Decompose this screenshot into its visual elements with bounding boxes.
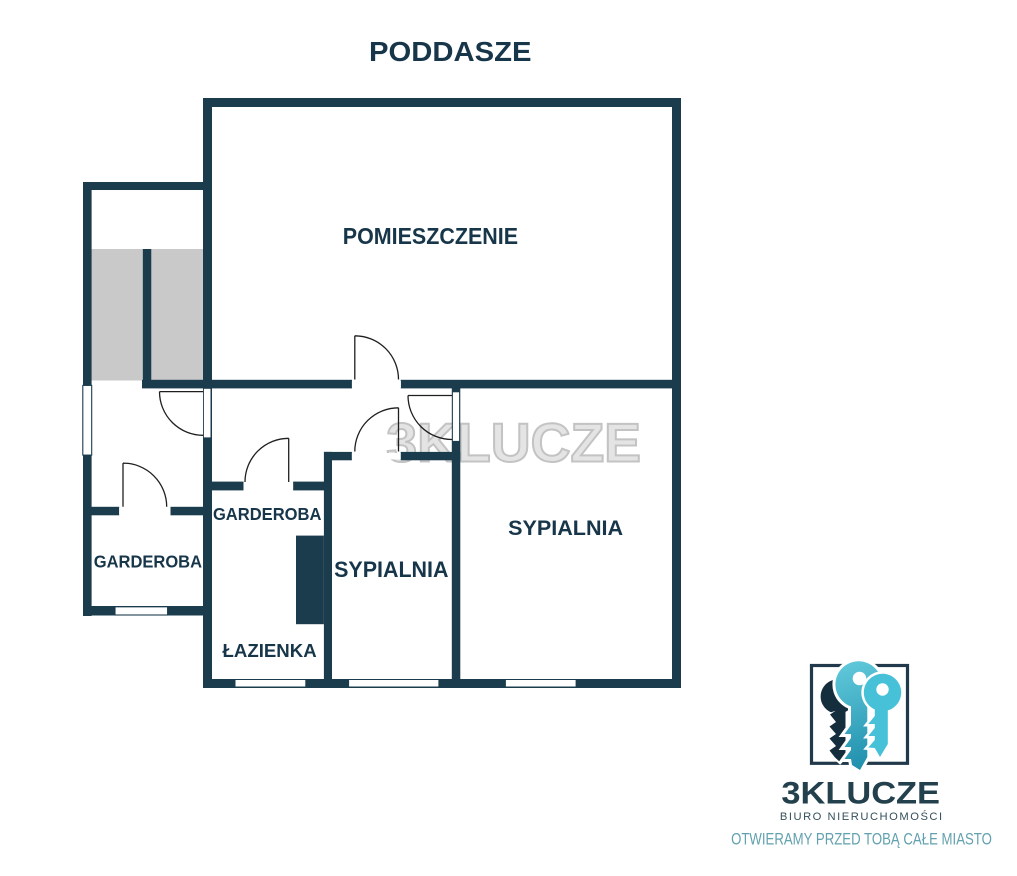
svg-text:ŁAZIENKA: ŁAZIENKA [223, 641, 317, 661]
svg-text:3KLUCZE: 3KLUCZE [386, 412, 641, 474]
svg-text:SYPIALNIA: SYPIALNIA [508, 516, 623, 540]
svg-text:BIURO NIERUCHOMOŚCI: BIURO NIERUCHOMOŚCI [780, 810, 942, 823]
svg-text:GARDEROBA: GARDEROBA [94, 552, 202, 572]
svg-text:3KLUCZE: 3KLUCZE [781, 774, 940, 810]
svg-text:GARDEROBA: GARDEROBA [213, 504, 322, 524]
svg-text:POMIESZCZENIE: POMIESZCZENIE [343, 223, 518, 249]
svg-text:SYPIALNIA: SYPIALNIA [334, 557, 448, 582]
svg-text:OTWIERAMY PRZED TOBĄ CAŁE MIAS: OTWIERAMY PRZED TOBĄ CAŁE MIASTO [731, 830, 992, 849]
svg-text:PODDASZE: PODDASZE [369, 36, 532, 67]
